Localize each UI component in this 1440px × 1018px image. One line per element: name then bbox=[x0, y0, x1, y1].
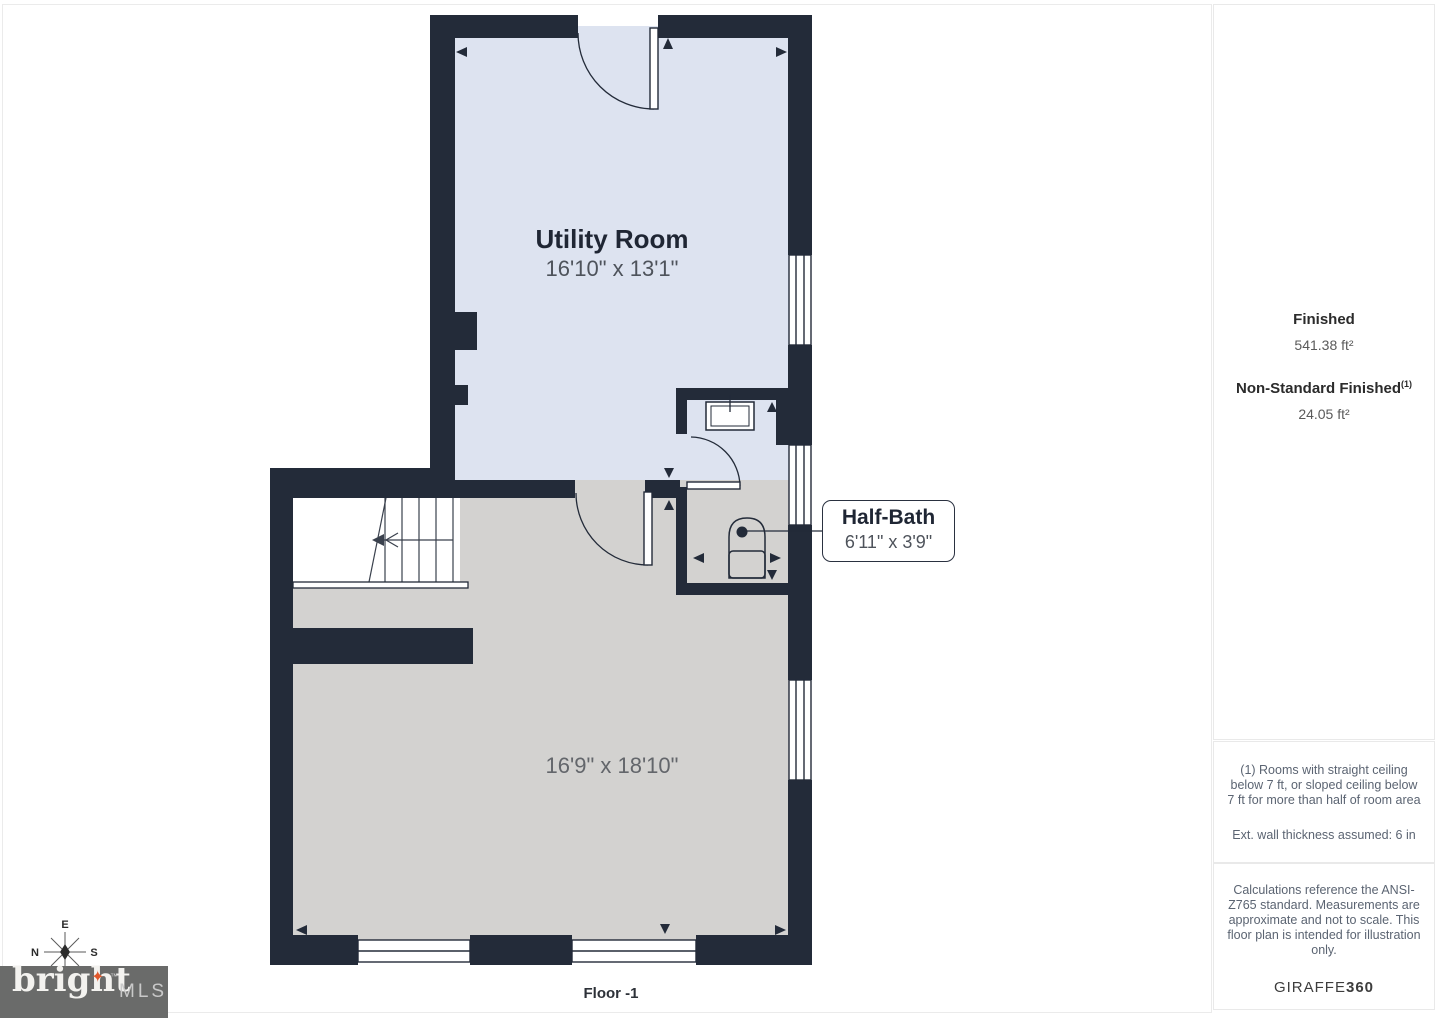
trademark-symbol: ™ bbox=[110, 972, 118, 981]
half-bath-label: Half-Bath bbox=[823, 506, 954, 530]
half-bath-callout: Half-Bath 6'11" x 3'9" bbox=[822, 500, 955, 562]
star-icon: ✦ bbox=[91, 967, 104, 987]
brightmls-logo: bright ✦ ™ MLS bbox=[0, 966, 168, 1018]
stairs bbox=[293, 498, 468, 588]
sidebar-areas-panel: Finished 541.38 ft² Non-Standard Finishe… bbox=[1213, 4, 1435, 740]
half-bath-dimensions: 6'11" x 3'9" bbox=[823, 530, 954, 554]
door-leaf bbox=[650, 28, 658, 109]
compass-east-label: E bbox=[61, 919, 68, 931]
giraffe360-brand: GIRAFFE360 bbox=[1214, 979, 1434, 996]
compass-north-label: N bbox=[31, 947, 39, 959]
floor-plan-drawing bbox=[0, 0, 1213, 1018]
compass-south-label: S bbox=[90, 947, 97, 959]
floor-label: Floor -1 bbox=[451, 985, 771, 1002]
window bbox=[789, 680, 811, 780]
brand-suffix: 360 bbox=[1346, 979, 1374, 996]
disclaimer-text: Calculations reference the ANSI-Z765 sta… bbox=[1226, 883, 1422, 958]
finished-label: Finished bbox=[1214, 311, 1434, 328]
door-leaf bbox=[687, 482, 740, 489]
non-standard-finished-value: 24.05 ft² bbox=[1214, 406, 1434, 422]
sidebar-disclaimer-panel: Calculations reference the ANSI-Z765 sta… bbox=[1213, 863, 1435, 1010]
window bbox=[789, 255, 811, 345]
utility-room-dimensions: 16'10" x 13'1" bbox=[462, 256, 762, 282]
main-room-dimensions: 16'9" x 18'10" bbox=[462, 753, 762, 779]
finished-value: 541.38 ft² bbox=[1214, 337, 1434, 353]
floor-plan-page: Utility Room 16'10" x 13'1" 16'9" x 18'1… bbox=[0, 0, 1440, 1018]
utility-room-label: Utility Room bbox=[462, 224, 762, 255]
compass-needle bbox=[60, 944, 70, 960]
window bbox=[789, 445, 811, 525]
door-leaf bbox=[644, 492, 652, 565]
logo-mls-text: MLS bbox=[119, 981, 167, 1003]
stair-rail bbox=[293, 582, 468, 588]
wall-thickness-footnote: Ext. wall thickness assumed: 6 in bbox=[1226, 828, 1422, 843]
non-standard-finished-text: Non-Standard Finished bbox=[1236, 380, 1401, 397]
non-standard-finished-label: Non-Standard Finished(1) bbox=[1214, 379, 1434, 397]
brand-name: GIRAFFE bbox=[1274, 979, 1346, 996]
sidebar-footnotes-panel: (1) Rooms with straight ceiling below 7 … bbox=[1213, 741, 1435, 863]
ceiling-footnote: (1) Rooms with straight ceiling below 7 … bbox=[1226, 763, 1422, 808]
footnote-marker: (1) bbox=[1401, 379, 1412, 389]
